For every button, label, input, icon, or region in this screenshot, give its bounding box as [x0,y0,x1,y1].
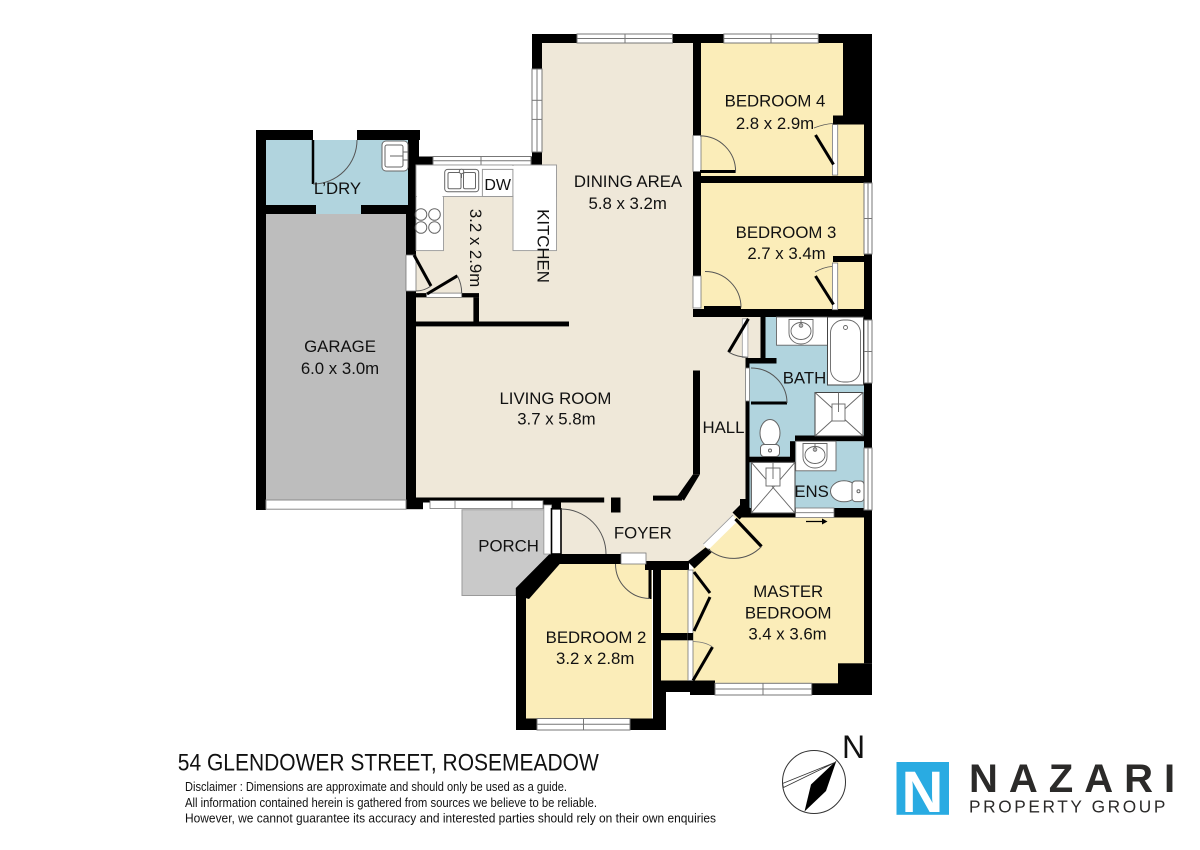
svg-text:5.8 x 3.2m: 5.8 x 3.2m [589,194,667,213]
svg-text:HALL: HALL [703,418,745,437]
svg-text:ENS: ENS [794,482,829,501]
svg-text:54 GLENDOWER STREET, ROSEMEADO: 54 GLENDOWER STREET, ROSEMEADOW [178,750,600,777]
svg-text:Disclaimer : Dimensions are ap: Disclaimer : Dimensions are approximate … [185,779,567,794]
svg-text:3.7 x 5.8m: 3.7 x 5.8m [517,410,595,429]
svg-text:3.2 x 2.8m: 3.2 x 2.8m [556,649,634,668]
svg-text:FOYER: FOYER [614,523,672,542]
svg-text:MASTER: MASTER [753,582,823,601]
svg-text:N: N [842,729,865,765]
svg-text:3.2 x 2.9m: 3.2 x 2.9m [466,209,485,287]
svg-text:6.0 x 3.0m: 6.0 x 3.0m [301,359,379,378]
svg-text:BEDROOM 3: BEDROOM 3 [736,223,837,242]
svg-text:LIVING ROOM: LIVING ROOM [499,389,611,408]
svg-text:L’DRY: L’DRY [314,179,361,198]
svg-text:PROPERTY GROUP: PROPERTY GROUP [969,797,1168,817]
svg-text:BEDROOM 2: BEDROOM 2 [546,628,647,647]
svg-text:BEDROOM 4: BEDROOM 4 [725,92,826,111]
svg-text:PORCH: PORCH [478,537,539,556]
svg-text:2.8 x 2.9m: 2.8 x 2.9m [736,114,814,133]
svg-text:2.7 x 3.4m: 2.7 x 3.4m [747,244,825,263]
svg-text:BEDROOM: BEDROOM [745,603,832,622]
svg-text:However, we cannot guarantee i: However, we cannot guarantee its accurac… [185,811,716,826]
svg-text:DINING AREA: DINING AREA [574,172,683,191]
svg-text:All information contained here: All information contained herein is gath… [185,795,597,810]
svg-text:N: N [902,760,944,825]
svg-text:3.4 x 3.6m: 3.4 x 3.6m [748,625,826,644]
svg-text:BATH: BATH [783,368,827,387]
svg-text:NAZARI: NAZARI [969,757,1186,801]
svg-text:GARAGE: GARAGE [304,337,376,356]
svg-text:KITCHEN: KITCHEN [534,209,553,283]
svg-text:DW: DW [484,177,512,194]
